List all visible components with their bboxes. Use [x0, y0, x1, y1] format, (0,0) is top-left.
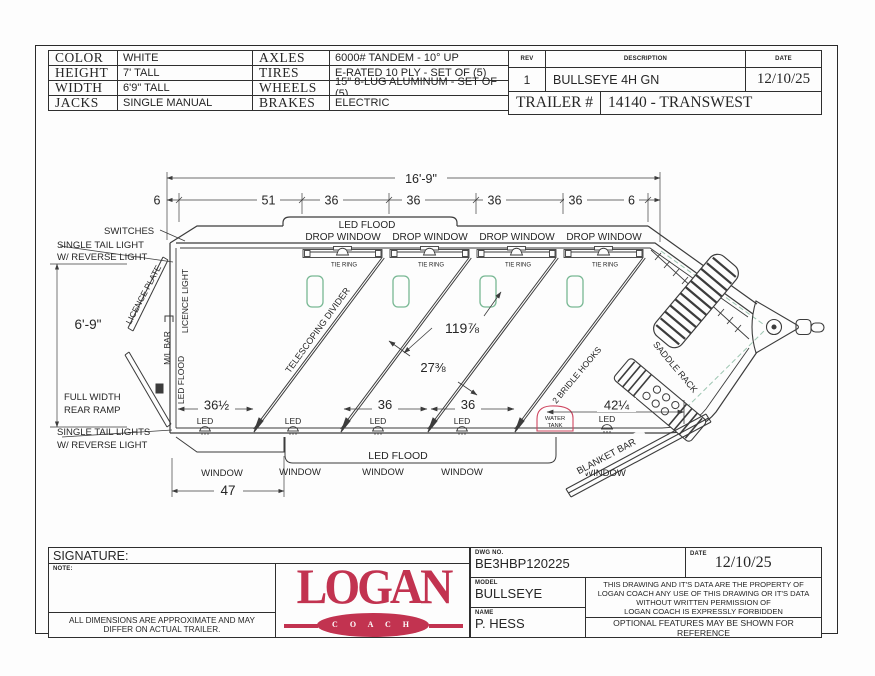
roof-vent-icon [567, 276, 583, 307]
dwg-no-value: BE3HBP120225 [471, 556, 570, 571]
logo-bar-right [429, 624, 463, 628]
spec-value: ELECTRIC [330, 97, 389, 109]
rev-header: REV [521, 56, 534, 62]
gooseneck-coupler-icon [752, 301, 824, 353]
label-drop-window: DROP WINDOW [392, 232, 468, 243]
dim-stall-36: 36 [488, 194, 502, 208]
dim-rear-window: 47 [220, 483, 235, 498]
label-window: WINDOW [362, 467, 404, 478]
description-value: BULLSEYE 4H GN [546, 73, 659, 87]
ml-bar-bracket-icon [165, 316, 173, 322]
date-header: DATE [775, 56, 792, 62]
spec-value: 6'9" TALL [118, 82, 170, 94]
label-switches: SWITCHES [104, 226, 154, 237]
trailer-number-label: TRAILER # [516, 94, 593, 112]
label-led-flood-rear: LED FLOOD [176, 356, 186, 404]
label-window: WINDOW [279, 467, 321, 478]
dim-floor-36: 36 [461, 397, 475, 412]
date-label: DATE [686, 548, 707, 557]
spec-value: SINGLE MANUAL [118, 97, 212, 109]
dim-nose-floor: 42¼ [604, 398, 629, 413]
logan-logo: LOGAN [276, 560, 471, 614]
label-tail-light-top-2: W/ REVERSE LIGHT [57, 252, 147, 263]
dim-stall-36: 36 [407, 194, 421, 208]
label-drop-window: DROP WINDOW [479, 232, 555, 243]
label-tail-light-bottom-1: SINGLE TAIL LIGHTS [57, 427, 150, 438]
logo-bar-left [284, 624, 318, 628]
label-tie-ring: TIE RING [505, 263, 531, 269]
label-tie-ring: TIE RING [418, 263, 444, 269]
note-label: NOTE: [49, 564, 73, 572]
label-led-flood-bottom: LED FLOOD [368, 450, 428, 462]
dim-stall-36: 36 [569, 194, 583, 208]
dim-stall-51: 51 [262, 194, 276, 208]
label-led: LED [599, 414, 616, 424]
dim-body-height: 6'-9" [75, 317, 102, 332]
roof-vent-icon [307, 276, 323, 307]
gooseneck-step-hatch [650, 250, 743, 352]
label-ml-bar: M/L BAR [162, 331, 172, 365]
name-value: P. HESS [471, 616, 525, 631]
label-drop-window: DROP WINDOW [566, 232, 642, 243]
rev-date-value: 12/10/25 [757, 71, 810, 88]
label-water-tank-2: TANK [547, 423, 562, 429]
dim-stall-36: 36 [325, 194, 339, 208]
bottom-window-outline [176, 437, 556, 463]
date-value: 12/10/25 [707, 548, 772, 572]
property-line: LOGAN COACH ANY USE OF THIS DRAWING OR I… [598, 589, 810, 598]
dim-rear-offset: 6 [154, 194, 161, 208]
logo-box: LOGAN C O A C H [275, 563, 470, 638]
label-tie-ring: TIE RING [331, 263, 357, 269]
spec-label: HEIGHT [49, 65, 108, 81]
spec-value: 6000# TANDEM - 10° UP [330, 52, 459, 64]
label-drop-window: DROP WINDOW [305, 232, 381, 243]
disclaimer-line-1: ALL DIMENSIONS ARE APPROXIMATE AND MAY [69, 616, 255, 625]
dim-overall-length: 16'-9" [405, 172, 437, 186]
trailer-number-value: 14140 - TRANSWEST [601, 94, 752, 112]
signature-label: SIGNATURE: [49, 549, 128, 563]
dim-divider-spacing: 27⅜ [420, 360, 445, 375]
label-tail-light-bottom-2: W/ REVERSE LIGHT [57, 440, 147, 451]
label-led-flood-top: LED FLOOD [339, 220, 396, 231]
spec-label: WIDTH [49, 80, 102, 96]
drawing-sheet: 16'-9" 6 51 36 36 36 36 6 6'-9" [0, 0, 875, 676]
label-telescoping-divider: TELESCOPING DIVIDER [283, 285, 352, 375]
disclaimer-line-2: DIFFER ON ACTUAL TRAILER. [104, 625, 221, 634]
optional-features-note: OPTIONAL FEATURES MAY BE SHOWN FOR REFER… [586, 618, 821, 638]
spec-label: COLOR [49, 50, 103, 66]
spec-label: JACKS [49, 95, 99, 111]
label-licence-plate: LICENCE PLATE [124, 263, 164, 326]
spec-value: 7' TALL [118, 67, 160, 79]
dim-floor-36: 36 [378, 397, 392, 412]
label-window: WINDOW [201, 468, 243, 479]
name-label: NAME [471, 608, 493, 616]
spec-value: WHITE [118, 52, 158, 64]
label-tie-ring: TIE RING [592, 263, 618, 269]
dwg-no-label: DWG NO. [471, 548, 503, 556]
label-led: LED [197, 416, 214, 426]
property-notice: THIS DRAWING AND IT'S DATA ARE THE PROPE… [585, 577, 822, 618]
description-header: DESCRIPTION [624, 56, 667, 62]
led-icon [601, 425, 613, 433]
dim-stall1-floor: 36½ [204, 398, 229, 413]
label-tail-light-top-1: SINGLE TAIL LIGHT [57, 240, 144, 251]
rear-flood-light-icon [156, 384, 163, 393]
spec-label: WHEELS [253, 80, 317, 96]
label-rear-ramp-2: REAR RAMP [64, 405, 120, 416]
label-licence-light: LICENCE LIGHT [180, 269, 190, 333]
label-rear-ramp-1: FULL WIDTH [64, 392, 121, 403]
label-water-tank-1: WATER [545, 416, 565, 422]
dim-divider-length: 119⅞ [445, 320, 479, 336]
coach-oval: C O A C H [317, 613, 429, 637]
property-line: WITHOUT WRITTEN PERMISSION OF [636, 598, 770, 607]
property-line: THIS DRAWING AND IT'S DATA ARE THE PROPE… [603, 580, 803, 589]
dim-front-offset: 6 [628, 194, 635, 208]
property-line: LOGAN COACH IS EXPRESSLY FORBIDDEN [624, 607, 783, 616]
roof-vent-icon [393, 276, 409, 307]
floor-dimension-labels: 36½ 36 36 42¼ 119⅞ 27⅜ [204, 320, 629, 413]
spec-label: AXLES [253, 50, 305, 66]
label-window: WINDOW [441, 467, 483, 478]
model-value: BULLSEYE [471, 586, 542, 601]
rev-value: 1 [524, 73, 531, 87]
label-led: LED [285, 416, 302, 426]
model-label: MODEL [471, 578, 498, 586]
spec-label: BRAKES [253, 95, 315, 111]
spec-label: TIRES [253, 65, 299, 81]
label-led: LED [370, 416, 387, 426]
label-led: LED [454, 416, 471, 426]
